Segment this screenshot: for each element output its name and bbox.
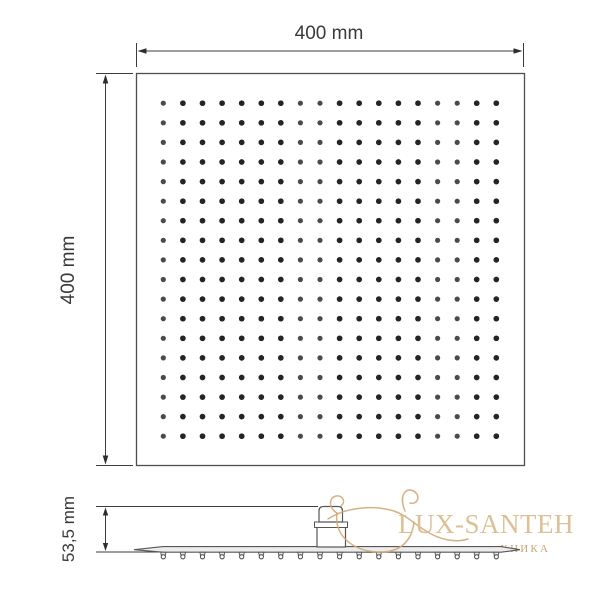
nozzle-dot <box>258 159 264 165</box>
nozzle-dot <box>161 277 166 282</box>
nozzle-dot <box>337 316 343 322</box>
shower-face-outline <box>137 74 525 466</box>
nozzle-dot <box>278 277 284 283</box>
nozzle-dot <box>180 100 186 106</box>
nozzle-dot <box>317 355 322 360</box>
nozzle-dot <box>396 120 402 126</box>
nozzle-dot <box>356 237 362 243</box>
nozzle-dot <box>493 433 499 439</box>
nozzle-dot <box>298 395 303 400</box>
nozzle-dot <box>317 257 322 262</box>
nozzle-dot <box>278 355 284 361</box>
nozzle-dot <box>493 257 499 263</box>
nozzle-dot <box>493 414 499 420</box>
nozzle-dot <box>356 120 362 126</box>
profile-nozzle-ball <box>436 555 440 559</box>
thickness-dimension-label: 53,5 mm <box>59 496 78 562</box>
nozzle-dot <box>337 140 343 146</box>
nozzle-dot <box>161 238 166 243</box>
top-dimension: 400 mm <box>137 23 524 67</box>
nozzle-dot <box>415 335 421 341</box>
nozzle-dot <box>239 375 245 381</box>
nozzle-dot <box>161 395 166 400</box>
nozzle-dot <box>200 375 206 381</box>
nozzle-dot <box>317 159 322 164</box>
nozzle-dot <box>415 296 421 302</box>
nozzle-dot <box>317 316 322 321</box>
nozzle-dot <box>474 100 480 106</box>
nozzle-dot <box>161 316 166 321</box>
nozzle-dot <box>337 159 343 165</box>
nozzle-dot <box>239 433 245 439</box>
nozzle-dot <box>258 179 264 185</box>
nozzle-dot <box>219 237 225 243</box>
nozzle-dot <box>258 257 264 263</box>
nozzle-dot <box>474 375 480 381</box>
nozzle-dot <box>474 335 480 341</box>
connector-inlet <box>319 507 343 523</box>
nozzle-dot <box>219 179 225 185</box>
profile-nozzle-ball <box>338 555 342 559</box>
nozzle-dot <box>415 120 421 126</box>
nozzle-dot <box>180 433 186 439</box>
nozzle-dot <box>219 414 225 420</box>
nozzle-dot <box>258 237 264 243</box>
nozzle-dot <box>474 237 480 243</box>
nozzle-dot <box>455 159 460 164</box>
nozzle-dot <box>278 218 284 224</box>
nozzle-dot <box>278 100 284 106</box>
arrow-left-icon <box>138 48 147 54</box>
nozzle-dot <box>298 257 303 262</box>
nozzle-dot <box>435 218 440 223</box>
nozzle-dot <box>219 316 225 322</box>
nozzle-dot <box>455 238 460 243</box>
nozzle-dot <box>219 120 225 126</box>
nozzle-dot <box>435 434 440 439</box>
nozzle-dot <box>356 335 362 341</box>
nozzle-dot <box>298 297 303 302</box>
nozzle-dot <box>356 198 362 204</box>
nozzle-dot <box>278 237 284 243</box>
nozzle-dot <box>219 355 225 361</box>
nozzle-dot <box>180 159 186 165</box>
nozzle-dot <box>258 316 264 322</box>
nozzle-dot <box>337 414 343 420</box>
nozzle-dot <box>239 296 245 302</box>
nozzle-dot <box>396 414 402 420</box>
nozzle-dot <box>493 120 499 126</box>
nozzle-dot <box>298 355 303 360</box>
nozzle-dot <box>474 198 480 204</box>
nozzle-dot <box>435 316 440 321</box>
nozzle-dot <box>239 394 245 400</box>
nozzle-dot <box>180 414 186 420</box>
profile-nozzle-ball <box>455 555 459 559</box>
technical-drawing: 400 mm 400 mm 53,5 mm ХНИКА <box>0 0 600 600</box>
nozzle-dot <box>356 316 362 322</box>
nozzle-dot <box>376 355 382 361</box>
nozzle-dot <box>161 355 166 360</box>
nozzle-dot <box>415 140 421 146</box>
nozzle-dot <box>200 198 206 204</box>
nozzle-dot <box>415 316 421 322</box>
nozzle-dot <box>200 140 206 146</box>
nozzle-dot <box>376 159 382 165</box>
nozzle-dot <box>435 297 440 302</box>
nozzle-dot <box>455 414 460 419</box>
nozzle-dot <box>376 375 382 381</box>
nozzle-dot <box>435 375 440 380</box>
nozzle-dot <box>474 355 480 361</box>
nozzle-dot <box>180 277 186 283</box>
nozzle-dot <box>474 140 480 146</box>
nozzle-dot <box>298 179 303 184</box>
nozzle-dot-grid <box>161 100 499 439</box>
nozzle-dot <box>376 120 382 126</box>
nozzle-dot <box>278 257 284 263</box>
nozzle-dot <box>239 335 245 341</box>
nozzle-dot <box>278 316 284 322</box>
nozzle-dot <box>396 257 402 263</box>
profile-nozzle-ball <box>494 555 498 559</box>
nozzle-dot <box>396 237 402 243</box>
nozzle-dot <box>396 140 402 146</box>
nozzle-dot <box>258 277 264 283</box>
nozzle-dot <box>278 179 284 185</box>
nozzle-dot <box>337 355 343 361</box>
nozzle-dot <box>435 140 440 145</box>
nozzle-dot <box>337 198 343 204</box>
nozzle-dot <box>356 100 362 106</box>
nozzle-dot <box>493 375 499 381</box>
nozzle-dot <box>180 355 186 361</box>
nozzle-dot <box>161 257 166 262</box>
nozzle-dot <box>161 375 166 380</box>
nozzle-dot <box>219 277 225 283</box>
nozzle-dot <box>200 433 206 439</box>
nozzle-dot <box>219 394 225 400</box>
width-dimension-label: 400 mm <box>295 23 364 44</box>
nozzle-dot <box>337 394 343 400</box>
nozzle-dot <box>435 277 440 282</box>
nozzle-dot <box>180 316 186 322</box>
nozzle-dot <box>493 198 499 204</box>
nozzle-dot <box>435 179 440 184</box>
nozzle-dot <box>278 414 284 420</box>
nozzle-dot <box>278 120 284 126</box>
nozzle-dot <box>200 257 206 263</box>
nozzle-dot <box>493 100 499 106</box>
nozzle-dot <box>239 414 245 420</box>
nozzle-dot <box>298 277 303 282</box>
nozzle-dot <box>396 355 402 361</box>
nozzle-dot <box>239 237 245 243</box>
nozzle-dot <box>258 198 264 204</box>
nozzle-dot <box>258 100 264 106</box>
connector-flange <box>315 522 348 528</box>
nozzle-dot <box>493 355 499 361</box>
nozzle-dot <box>278 296 284 302</box>
nozzle-dot <box>239 159 245 165</box>
nozzle-dot <box>180 140 186 146</box>
nozzle-dot <box>219 335 225 341</box>
nozzle-dot <box>161 297 166 302</box>
nozzle-dot <box>493 159 499 165</box>
nozzle-dot <box>455 375 460 380</box>
nozzle-dot <box>219 159 225 165</box>
nozzle-dot <box>396 100 402 106</box>
nozzle-dot <box>493 179 499 185</box>
nozzle-dot <box>356 257 362 263</box>
nozzle-dot <box>493 394 499 400</box>
nozzle-dot <box>298 375 303 380</box>
profile-nozzle-row <box>161 552 499 559</box>
nozzle-dot <box>337 218 343 224</box>
nozzle-dot <box>474 257 480 263</box>
nozzle-dot <box>455 434 460 439</box>
nozzle-dot <box>200 218 206 224</box>
shower-head-dimension-drawing: 400 mm 400 mm 53,5 mm ХНИКА <box>0 0 600 600</box>
nozzle-dot <box>493 296 499 302</box>
nozzle-dot <box>356 159 362 165</box>
nozzle-dot <box>219 433 225 439</box>
nozzle-dot <box>239 120 245 126</box>
nozzle-dot <box>239 179 245 185</box>
nozzle-dot <box>161 336 166 341</box>
nozzle-dot <box>239 140 245 146</box>
nozzle-dot <box>219 218 225 224</box>
nozzle-dot <box>239 100 245 106</box>
nozzle-dot <box>317 140 322 145</box>
nozzle-dot <box>239 257 245 263</box>
profile-nozzle-ball <box>416 555 420 559</box>
nozzle-dot <box>298 414 303 419</box>
nozzle-dot <box>415 237 421 243</box>
nozzle-dot <box>180 218 186 224</box>
nozzle-dot <box>278 140 284 146</box>
nozzle-dot <box>200 100 206 106</box>
nozzle-dot <box>239 218 245 224</box>
nozzle-dot <box>435 101 440 106</box>
nozzle-dot <box>258 355 264 361</box>
arrow-up-icon <box>103 75 109 84</box>
arrow-down-icon <box>103 456 109 465</box>
nozzle-dot <box>356 140 362 146</box>
nozzle-dot <box>200 277 206 283</box>
nozzle-dot <box>415 198 421 204</box>
nozzle-dot <box>258 375 264 381</box>
nozzle-dot <box>258 414 264 420</box>
nozzle-dot <box>376 277 382 283</box>
nozzle-dot <box>337 179 343 185</box>
profile-nozzle-ball <box>279 555 283 559</box>
arrow-right-icon <box>514 48 523 54</box>
nozzle-dot <box>298 140 303 145</box>
nozzle-dot <box>493 277 499 283</box>
nozzle-dot <box>474 159 480 165</box>
nozzle-dot <box>455 218 460 223</box>
profile-nozzle-ball <box>240 555 244 559</box>
nozzle-dot <box>474 433 480 439</box>
nozzle-dot <box>180 375 186 381</box>
nozzle-dot <box>219 100 225 106</box>
nozzle-dot <box>415 277 421 283</box>
nozzle-dot <box>455 199 460 204</box>
nozzle-dot <box>219 296 225 302</box>
nozzle-dot <box>376 394 382 400</box>
nozzle-dot <box>161 414 166 419</box>
nozzle-dot <box>317 238 322 243</box>
nozzle-dot <box>415 218 421 224</box>
nozzle-dot <box>317 199 322 204</box>
nozzle-dot <box>298 159 303 164</box>
profile-nozzle-ball <box>181 555 185 559</box>
nozzle-dot <box>180 120 186 126</box>
nozzle-dot <box>180 198 186 204</box>
nozzle-dot <box>396 277 402 283</box>
nozzle-dot <box>298 120 303 125</box>
nozzle-dot <box>455 140 460 145</box>
nozzle-dot <box>415 179 421 185</box>
nozzle-dot <box>200 394 206 400</box>
nozzle-dot <box>435 257 440 262</box>
profile-nozzle-ball <box>318 555 322 559</box>
nozzle-dot <box>161 120 166 125</box>
rotated-label-group: 53,5 mm <box>59 496 78 562</box>
nozzle-dot <box>474 120 480 126</box>
nozzle-dot <box>200 316 206 322</box>
connector-body <box>317 527 346 547</box>
nozzle-dot <box>278 433 284 439</box>
swan-spout-stroke <box>402 490 417 511</box>
nozzle-dot <box>376 198 382 204</box>
nozzle-dot <box>317 336 322 341</box>
profile-nozzle-ball <box>259 555 263 559</box>
nozzle-dot <box>396 375 402 381</box>
nozzle-dot <box>376 433 382 439</box>
nozzle-dot <box>376 100 382 106</box>
nozzle-dot <box>474 218 480 224</box>
nozzle-dot <box>200 296 206 302</box>
nozzle-dot <box>219 198 225 204</box>
nozzle-dot <box>376 335 382 341</box>
height-dimension-label: 400 mm <box>58 236 79 305</box>
watermark-brand-text: LUX-SANTEH <box>398 509 574 539</box>
nozzle-dot <box>396 394 402 400</box>
nozzle-dot <box>258 296 264 302</box>
nozzle-dot <box>455 316 460 321</box>
nozzle-dot <box>239 198 245 204</box>
arrow-down-icon <box>103 543 108 551</box>
nozzle-dot <box>258 218 264 224</box>
nozzle-dot <box>415 414 421 420</box>
rotated-label-group: 400 mm <box>58 236 79 305</box>
nozzle-dot <box>278 198 284 204</box>
nozzle-dot <box>455 395 460 400</box>
nozzle-dot <box>474 316 480 322</box>
nozzle-dot <box>298 434 303 439</box>
nozzle-dot <box>161 101 166 106</box>
nozzle-dot <box>455 257 460 262</box>
nozzle-dot <box>161 218 166 223</box>
nozzle-dot <box>258 120 264 126</box>
nozzle-dot <box>396 433 402 439</box>
profile-nozzle-ball <box>220 555 224 559</box>
profile-nozzle-ball <box>200 555 204 559</box>
nozzle-dot <box>298 316 303 321</box>
nozzle-dot <box>376 218 382 224</box>
nozzle-dot <box>474 277 480 283</box>
arrow-up-icon <box>103 508 108 516</box>
nozzle-dot <box>376 414 382 420</box>
nozzle-dot <box>337 100 343 106</box>
nozzle-dot <box>200 179 206 185</box>
profile-nozzle-ball <box>475 555 479 559</box>
nozzle-dot <box>396 335 402 341</box>
nozzle-dot <box>200 335 206 341</box>
nozzle-dot <box>317 375 322 380</box>
nozzle-dot <box>474 296 480 302</box>
nozzle-dot <box>435 336 440 341</box>
profile-nozzle-ball <box>377 555 381 559</box>
nozzle-dot <box>200 355 206 361</box>
profile-nozzle-ball <box>357 555 361 559</box>
nozzle-dot <box>180 237 186 243</box>
face-view <box>137 74 525 466</box>
nozzle-dot <box>455 297 460 302</box>
nozzle-dot <box>415 355 421 361</box>
nozzle-dot <box>298 101 303 106</box>
nozzle-dot <box>298 238 303 243</box>
nozzle-dot <box>317 120 322 125</box>
nozzle-dot <box>337 375 343 381</box>
nozzle-dot <box>258 140 264 146</box>
nozzle-dot <box>278 394 284 400</box>
nozzle-dot <box>356 355 362 361</box>
nozzle-dot <box>180 257 186 263</box>
nozzle-dot <box>474 179 480 185</box>
nozzle-dot <box>337 257 343 263</box>
nozzle-dot <box>396 159 402 165</box>
nozzle-dot <box>278 159 284 165</box>
nozzle-dot <box>455 179 460 184</box>
profile-nozzle-ball <box>396 555 400 559</box>
nozzle-dot <box>298 218 303 223</box>
nozzle-dot <box>396 198 402 204</box>
nozzle-dot <box>455 336 460 341</box>
nozzle-dot <box>435 395 440 400</box>
nozzle-dot <box>435 199 440 204</box>
nozzle-dot <box>317 179 322 184</box>
nozzle-dot <box>337 237 343 243</box>
nozzle-dot <box>396 316 402 322</box>
nozzle-dot <box>493 335 499 341</box>
nozzle-dot <box>376 316 382 322</box>
nozzle-dot <box>415 257 421 263</box>
nozzle-dot <box>493 218 499 224</box>
nozzle-dot <box>180 296 186 302</box>
profile-nozzle-ball <box>161 555 165 559</box>
nozzle-dot <box>396 179 402 185</box>
nozzle-dot <box>200 120 206 126</box>
nozzle-dot <box>356 394 362 400</box>
nozzle-dot <box>356 179 362 185</box>
profile-nozzle-ball <box>298 555 302 559</box>
nozzle-dot <box>219 257 225 263</box>
nozzle-dot <box>493 237 499 243</box>
nozzle-dot <box>200 237 206 243</box>
